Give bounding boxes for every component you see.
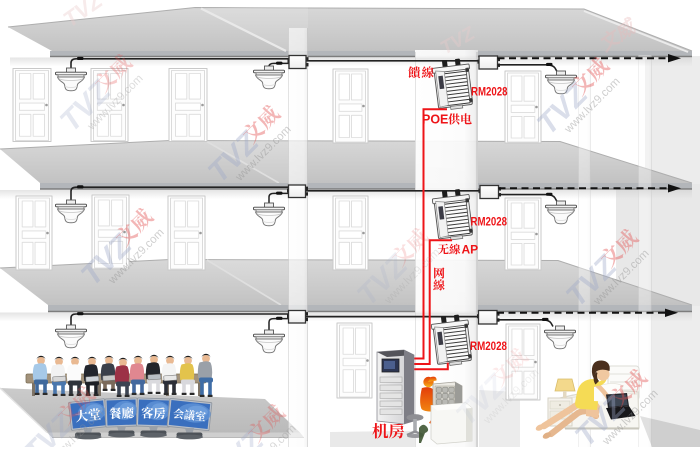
svg-text:RM2028: RM2028: [470, 339, 507, 353]
svg-text:RM2028: RM2028: [471, 215, 508, 229]
svg-text:RM2028: RM2028: [471, 85, 508, 99]
svg-text:AP: AP: [462, 243, 479, 257]
svg-text:POE: POE: [422, 113, 448, 127]
